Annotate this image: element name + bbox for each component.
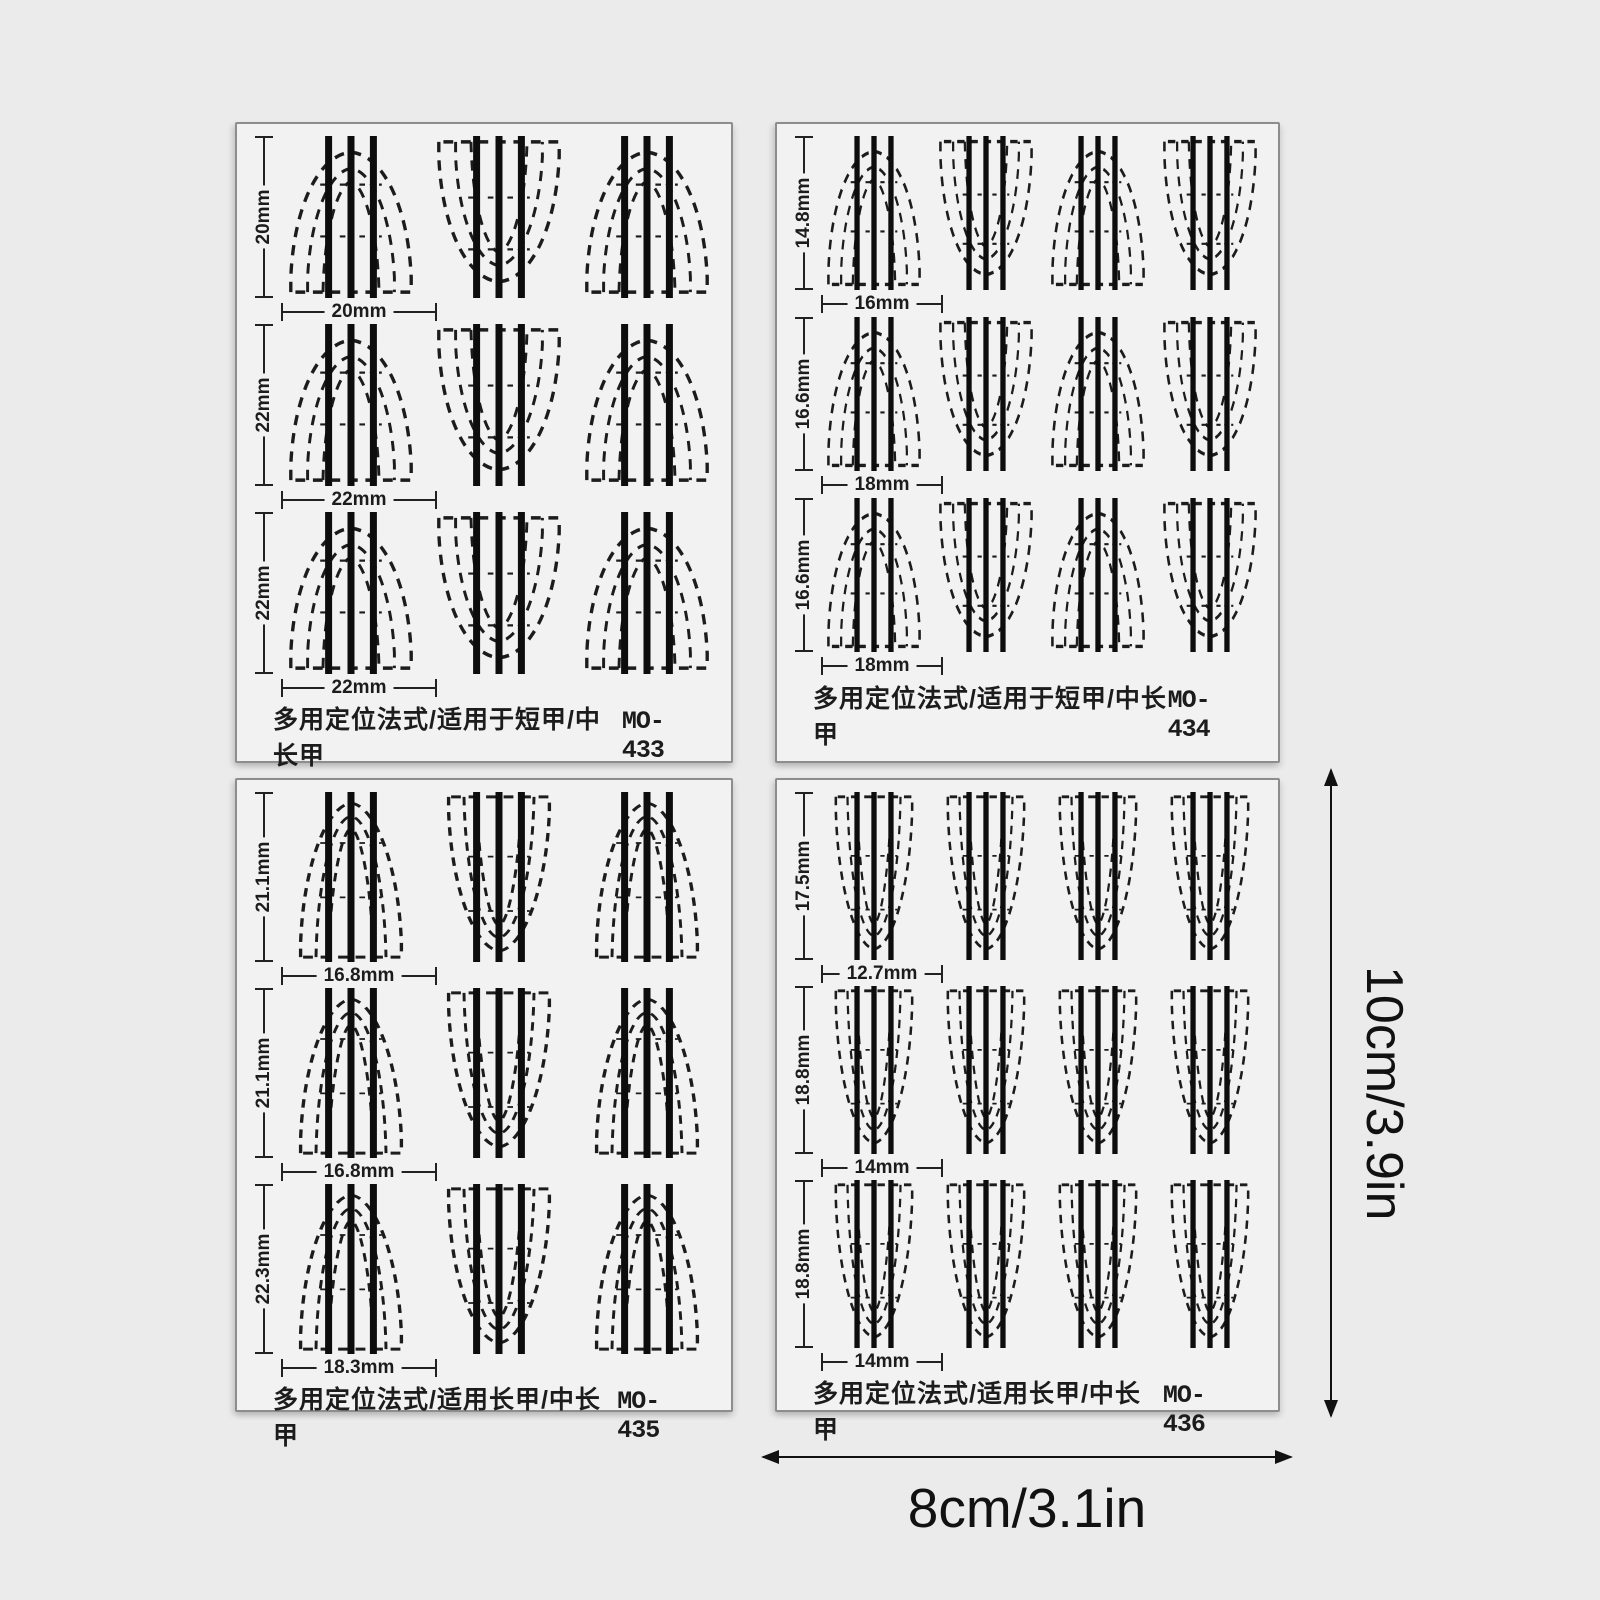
height-measure-label: 18.8mm xyxy=(792,1031,816,1110)
width-bracket: 12.7mm xyxy=(821,962,943,986)
measurement-row: 22.3mm18.3mm xyxy=(247,1184,721,1380)
nail-stencil-cell-down xyxy=(1157,792,1263,960)
height-measure-label: 16.6mm xyxy=(792,355,816,434)
arrow-up-icon xyxy=(1324,768,1338,786)
width-dimension-arrow xyxy=(763,1456,1291,1458)
measurement-row: 14.8mm16mm xyxy=(787,136,1268,316)
width-bracket: 18mm xyxy=(821,654,943,678)
width-measure-label: 20mm xyxy=(325,301,394,323)
width-measure-label: 18mm xyxy=(848,655,917,677)
nail-stencil-cell-down xyxy=(933,792,1039,960)
width-bracket: 16mm xyxy=(821,292,943,316)
height-measure-label: 22.3mm xyxy=(252,1230,276,1309)
height-bracket: 20mm xyxy=(247,136,281,298)
nail-stencil-cell-down xyxy=(1157,498,1263,652)
nail-stencil-cell-down xyxy=(1045,986,1151,1154)
sheet-title-text: 多用定位法式/适用长甲/中长甲 xyxy=(273,1380,617,1452)
height-measure-label: 22mm xyxy=(252,374,276,437)
measurement-row: 20mm20mm xyxy=(247,136,721,324)
measurement-row: 16.6mm18mm xyxy=(787,317,1268,497)
width-bracket: 22mm xyxy=(281,676,437,700)
width-bracket: 18mm xyxy=(821,473,943,497)
measurement-row: 22mm22mm xyxy=(247,324,721,512)
width-bracket: 16.8mm xyxy=(281,1160,437,1184)
measurement-row: 17.5mm12.7mm xyxy=(787,792,1268,986)
nail-stencil-cell-down xyxy=(1157,317,1263,471)
measurement-row: 18.8mm14mm xyxy=(787,986,1268,1180)
width-measure-label: 22mm xyxy=(325,489,394,511)
nail-stencil-cell-up xyxy=(577,512,717,674)
nail-stencil-cell-down xyxy=(429,792,569,962)
nail-stencil-cell-up xyxy=(577,324,717,486)
nail-stencil-cell-down xyxy=(429,512,569,674)
nail-stencil-cell-down xyxy=(1157,1180,1263,1348)
width-bracket: 14mm xyxy=(821,1156,943,1180)
nail-stencil-cell-down xyxy=(933,498,1039,652)
product-diagram: 20mm20mm22mm22mm22mm22mm多用定位法式/适用于短甲/中长甲… xyxy=(0,0,1600,1600)
sheet-footer: 多用定位法式/适用于短甲/中长甲MO-433 xyxy=(247,700,721,774)
sheet-title-text: 多用定位法式/适用于短甲/中长甲 xyxy=(813,679,1168,751)
nail-stencil-cell-down xyxy=(821,986,927,1154)
height-bracket: 14.8mm xyxy=(787,136,821,290)
nail-stencil-cell-up xyxy=(281,324,421,486)
nail-stencil-cell-up xyxy=(577,792,717,962)
width-bracket: 22mm xyxy=(281,488,437,512)
nail-stencil-cell-up xyxy=(1045,498,1151,652)
height-bracket: 22mm xyxy=(247,512,281,674)
nail-stencil-cell-up xyxy=(577,136,717,298)
nail-stencil-cell-down xyxy=(429,988,569,1158)
sheet-mo-436: 17.5mm12.7mm18.8mm14mm18.8mm14mm多用定位法式/适… xyxy=(775,778,1280,1412)
width-measure-label: 14mm xyxy=(848,1157,917,1179)
nail-stencil-cell-up xyxy=(1045,317,1151,471)
sheet-footer: 多用定位法式/适用长甲/中长甲MO-435 xyxy=(247,1380,721,1454)
height-bracket: 22.3mm xyxy=(247,1184,281,1354)
nail-stencil-cell-up xyxy=(821,498,927,652)
height-measure-label: 22mm xyxy=(252,562,276,625)
width-bracket: 18.3mm xyxy=(281,1356,437,1380)
sheet-mo-435: 21.1mm16.8mm21.1mm16.8mm22.3mm18.3mm多用定位… xyxy=(235,778,733,1412)
nail-stencil-cell-up xyxy=(577,1184,717,1354)
nail-stencil-cell-down xyxy=(821,1180,927,1348)
height-bracket: 17.5mm xyxy=(787,792,821,960)
measurement-row: 21.1mm16.8mm xyxy=(247,792,721,988)
nail-stencil-cell-up xyxy=(821,136,927,290)
height-measure-label: 14.8mm xyxy=(792,174,816,253)
height-measure-label: 18.8mm xyxy=(792,1225,816,1304)
nail-stencil-cell-down xyxy=(429,136,569,298)
sheet-code: MO-434 xyxy=(1168,686,1246,744)
nail-stencil-cell-down xyxy=(821,792,927,960)
nail-stencil-cell-up xyxy=(281,136,421,298)
width-measure-label: 18mm xyxy=(848,474,917,496)
sheet-mo-434: 14.8mm16mm16.6mm18mm16.6mm18mm多用定位法式/适用于… xyxy=(775,122,1280,763)
nail-stencil-cell-down xyxy=(933,317,1039,471)
nail-stencil-cell-down xyxy=(933,1180,1039,1348)
height-bracket: 18.8mm xyxy=(787,986,821,1154)
sheet-mo-433: 20mm20mm22mm22mm22mm22mm多用定位法式/适用于短甲/中长甲… xyxy=(235,122,733,763)
arrow-right-icon xyxy=(1275,1450,1293,1464)
sheet-footer: 多用定位法式/适用于短甲/中长甲MO-434 xyxy=(787,679,1268,753)
width-measure-label: 12.7mm xyxy=(840,963,925,985)
nail-stencil-cell-up xyxy=(821,317,927,471)
nail-stencil-cell-up xyxy=(577,988,717,1158)
width-bracket: 14mm xyxy=(821,1350,943,1374)
sheet-code: MO-435 xyxy=(617,1387,699,1445)
arrow-down-icon xyxy=(1324,1400,1338,1418)
arrow-left-icon xyxy=(761,1450,779,1464)
height-bracket: 22mm xyxy=(247,324,281,486)
nail-stencil-cell-down xyxy=(1157,136,1263,290)
width-measure-label: 22mm xyxy=(325,677,394,699)
width-measure-label: 16mm xyxy=(848,293,917,315)
width-bracket: 16.8mm xyxy=(281,964,437,988)
width-bracket: 20mm xyxy=(281,300,437,324)
height-dimension-arrow xyxy=(1330,770,1332,1416)
sheet-code: MO-433 xyxy=(622,707,699,765)
height-measure-label: 17.5mm xyxy=(792,837,816,916)
nail-stencil-cell-up xyxy=(281,1184,421,1354)
width-measure-label: 14mm xyxy=(848,1351,917,1373)
height-bracket: 18.8mm xyxy=(787,1180,821,1348)
measurement-row: 16.6mm18mm xyxy=(787,498,1268,678)
width-dimension-label: 8cm/3.1in xyxy=(763,1476,1291,1540)
nail-stencil-cell-down xyxy=(933,136,1039,290)
height-bracket: 16.6mm xyxy=(787,317,821,471)
height-bracket: 21.1mm xyxy=(247,988,281,1158)
nail-stencil-cell-up xyxy=(281,988,421,1158)
sheet-title-text: 多用定位法式/适用长甲/中长甲 xyxy=(813,1374,1163,1446)
height-measure-label: 16.6mm xyxy=(792,536,816,615)
height-bracket: 16.6mm xyxy=(787,498,821,652)
nail-stencil-cell-down xyxy=(933,986,1039,1154)
height-measure-label: 20mm xyxy=(252,186,276,249)
sheet-code: MO-436 xyxy=(1163,1381,1246,1439)
nail-stencil-cell-down xyxy=(1045,792,1151,960)
measurement-row: 18.8mm14mm xyxy=(787,1180,1268,1374)
measurement-row: 22mm22mm xyxy=(247,512,721,700)
nail-stencil-cell-down xyxy=(429,324,569,486)
sheet-title-text: 多用定位法式/适用于短甲/中长甲 xyxy=(273,700,622,772)
height-dimension-label: 10cm/3.9in xyxy=(1346,770,1422,1416)
width-measure-label: 16.8mm xyxy=(317,1161,402,1183)
width-measure-label: 16.8mm xyxy=(317,965,402,987)
measurement-row: 21.1mm16.8mm xyxy=(247,988,721,1184)
nail-stencil-cell-up xyxy=(281,792,421,962)
height-measure-label: 21.1mm xyxy=(252,838,276,917)
nail-stencil-cell-up xyxy=(1045,136,1151,290)
sheet-footer: 多用定位法式/适用长甲/中长甲MO-436 xyxy=(787,1374,1268,1448)
nail-stencil-cell-down xyxy=(1157,986,1263,1154)
width-measure-label: 18.3mm xyxy=(317,1357,402,1379)
height-measure-label: 21.1mm xyxy=(252,1034,276,1113)
nail-stencil-cell-up xyxy=(281,512,421,674)
nail-stencil-cell-down xyxy=(1045,1180,1151,1348)
height-bracket: 21.1mm xyxy=(247,792,281,962)
nail-stencil-cell-down xyxy=(429,1184,569,1354)
